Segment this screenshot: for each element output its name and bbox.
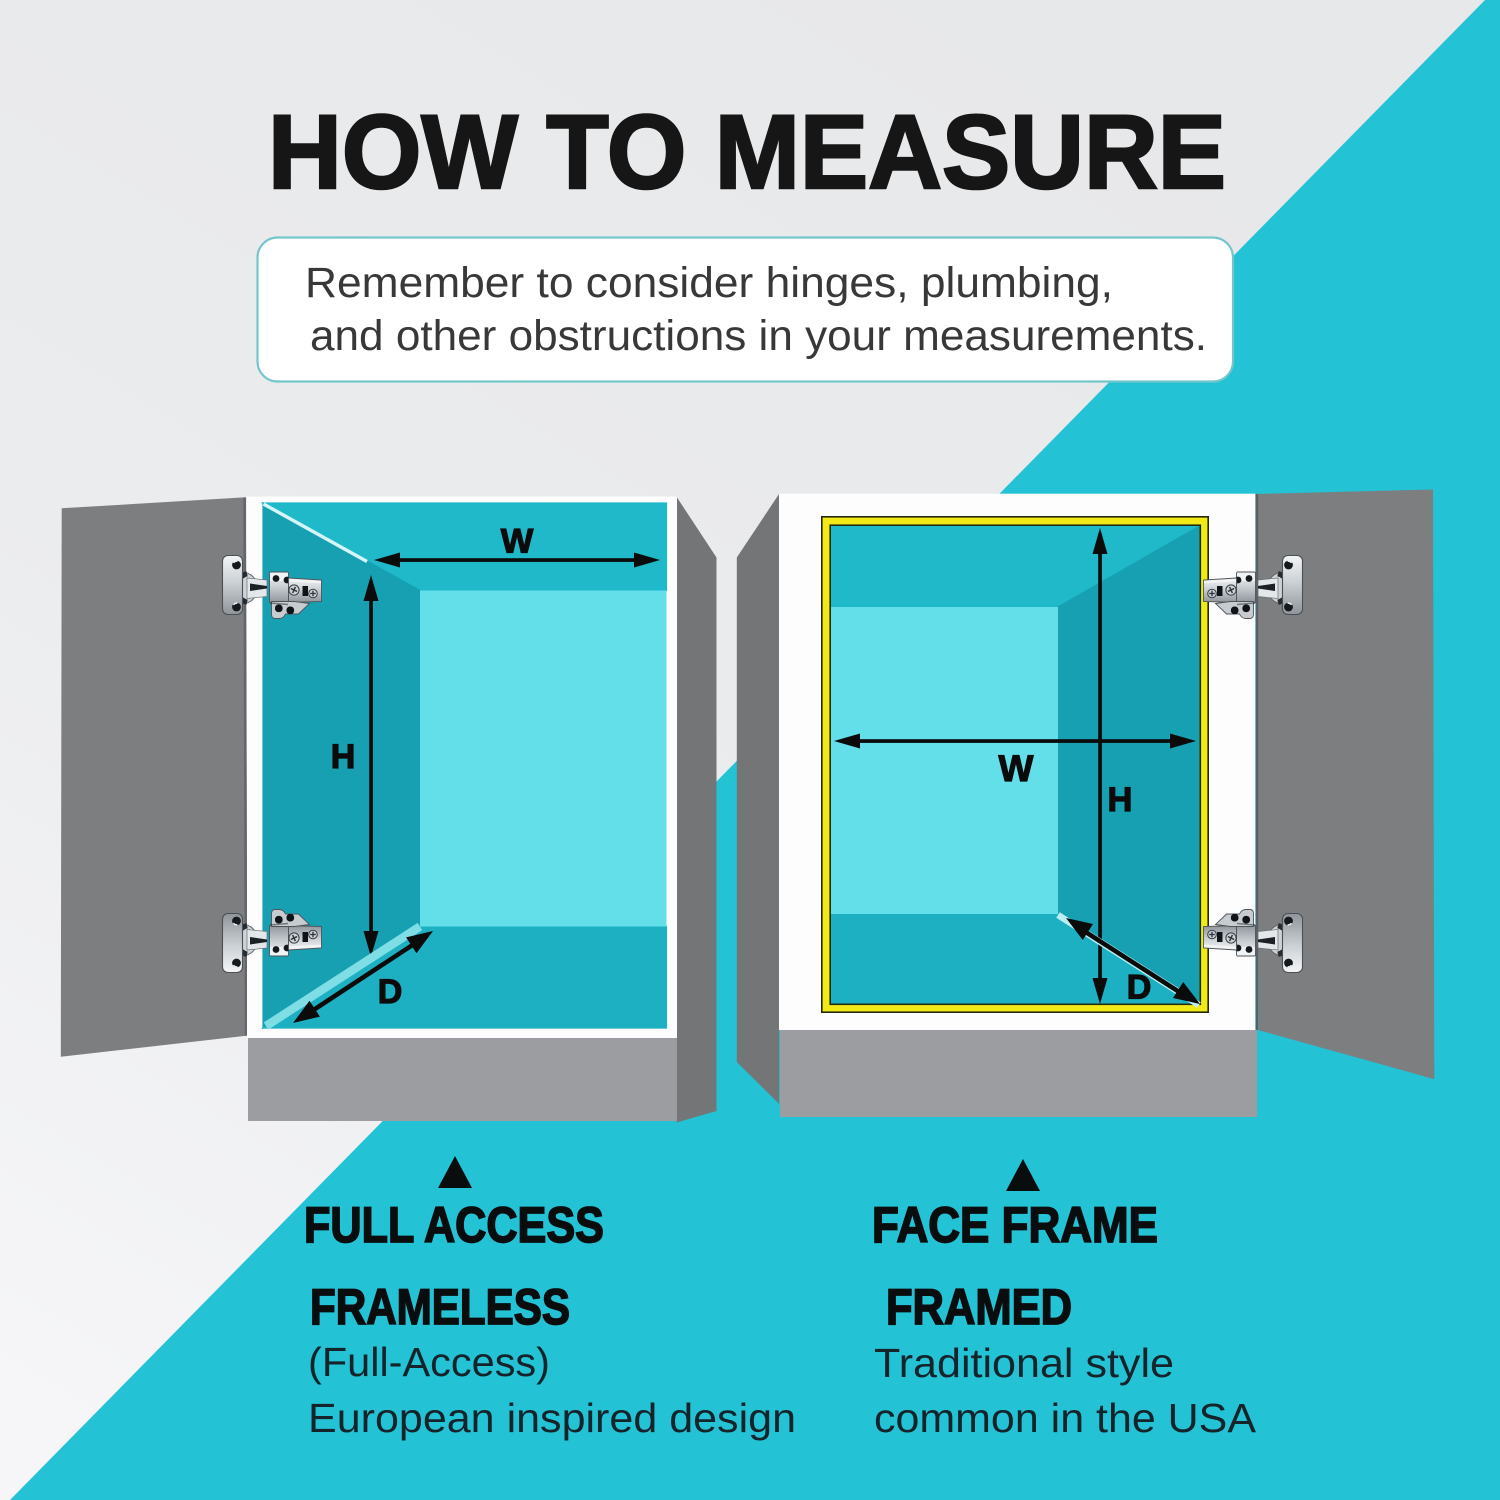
svg-text:(Full-Access): (Full-Access) [308,1339,550,1385]
svg-text:FRAMELESS: FRAMELESS [310,1279,570,1335]
svg-text:European inspired design: European inspired design [308,1395,796,1441]
svg-text:Remember to consider hinges, p: Remember to consider hinges, plumbing, [305,260,1113,307]
svg-text:H: H [331,738,356,776]
svg-text:W: W [501,523,534,561]
svg-text:common in the USA: common in the USA [874,1395,1257,1441]
svg-text:HOW TO MEASURE: HOW TO MEASURE [268,94,1226,211]
svg-text:Traditional style: Traditional style [874,1340,1174,1386]
svg-text:W: W [999,748,1034,789]
svg-text:D: D [1127,969,1152,1007]
svg-text:FRAMED: FRAMED [886,1279,1072,1335]
svg-text:and other obstructions in your: and other obstructions in your measureme… [310,313,1207,360]
svg-text:FACE FRAME: FACE FRAME [872,1197,1158,1253]
svg-text:FULL ACCESS: FULL ACCESS [304,1197,604,1253]
svg-text:H: H [1108,781,1133,819]
svg-text:D: D [378,973,403,1011]
